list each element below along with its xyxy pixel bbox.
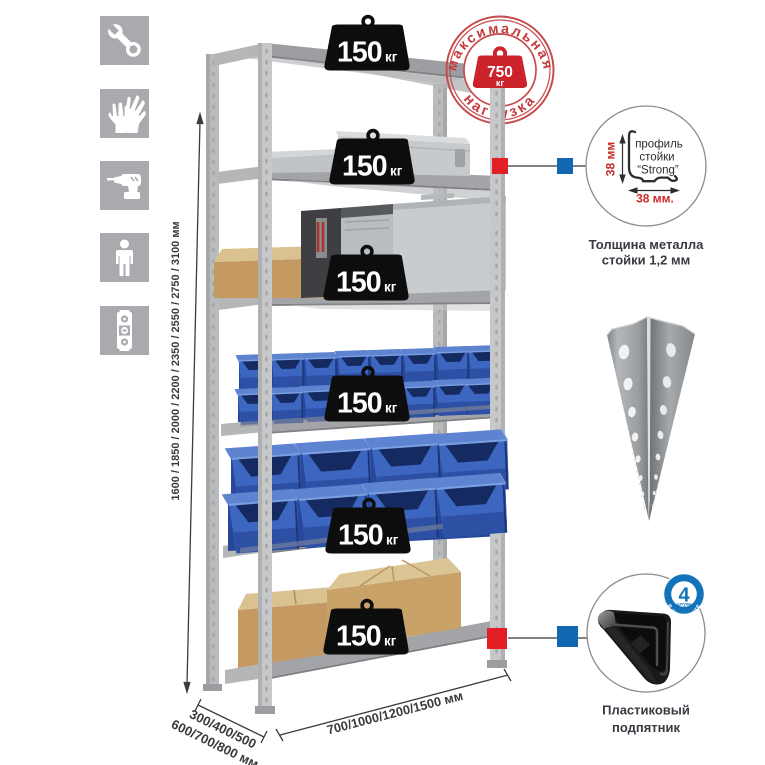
svg-text:38 мм.: 38 мм. bbox=[636, 192, 674, 206]
svg-text:стойки 1,2 мм: стойки 1,2 мм bbox=[602, 253, 690, 268]
svg-text:штуки: штуки bbox=[677, 602, 691, 607]
svg-text:“Strong”: “Strong” bbox=[637, 165, 679, 177]
svg-text:700/1000/1200/1500 мм: 700/1000/1200/1500 мм bbox=[325, 688, 464, 738]
svg-text:подпятник: подпятник bbox=[612, 720, 681, 735]
svg-text:Пластиковый: Пластиковый bbox=[602, 703, 690, 718]
svg-text:профиль: профиль bbox=[635, 139, 683, 151]
svg-text:38 мм: 38 мм bbox=[604, 142, 618, 177]
svg-text:кг: кг bbox=[496, 78, 505, 88]
svg-text:1600 / 1850 / 2000 / 2200 / 23: 1600 / 1850 / 2000 / 2200 / 2350 / 2550 … bbox=[170, 221, 182, 500]
svg-text:Толщина металла: Толщина металла bbox=[589, 237, 704, 252]
svg-text:стойки: стойки bbox=[639, 152, 674, 164]
